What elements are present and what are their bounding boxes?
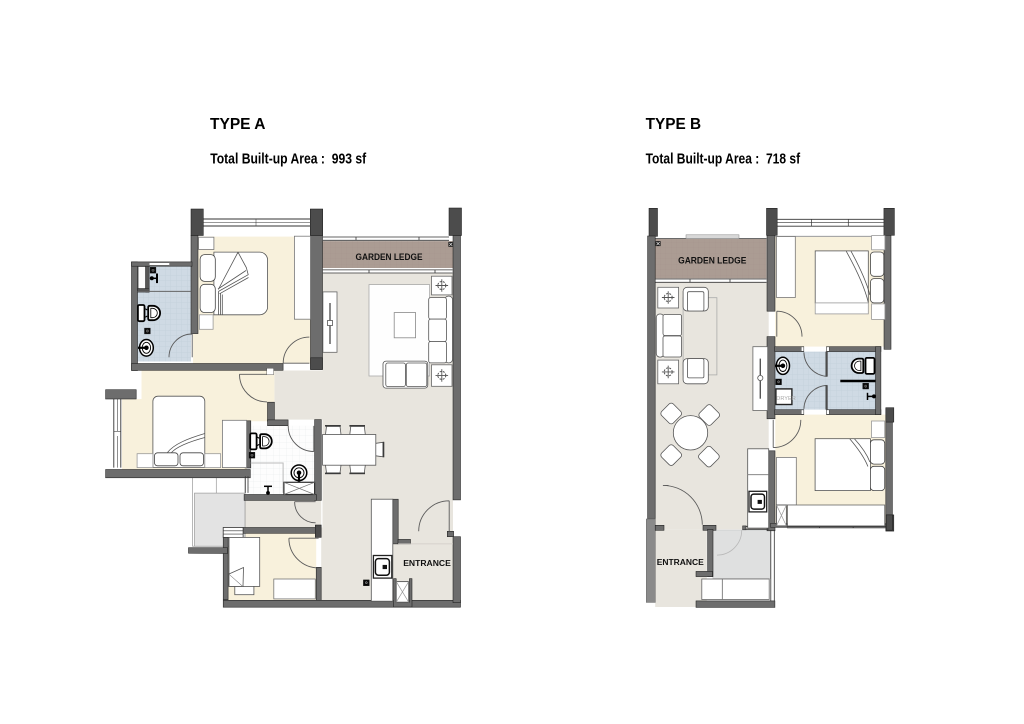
svg-text:GARDEN LEDGE: GARDEN LEDGE: [356, 252, 423, 262]
svg-text:DRYER: DRYER: [776, 396, 795, 402]
svg-text:ENTRANCE: ENTRANCE: [403, 558, 451, 568]
svg-text:TYPE B: TYPE B: [646, 116, 702, 133]
svg-text:ENTRANCE: ENTRANCE: [657, 557, 704, 567]
svg-text:Total Built-up Area : 718 sf: Total Built-up Area : 718 sf: [646, 152, 801, 168]
svg-text:Total Built-up Area : 993 sf: Total Built-up Area : 993 sf: [210, 152, 366, 168]
svg-text:TYPE A: TYPE A: [210, 116, 266, 133]
svg-text:GARDEN LEDGE: GARDEN LEDGE: [678, 255, 747, 266]
